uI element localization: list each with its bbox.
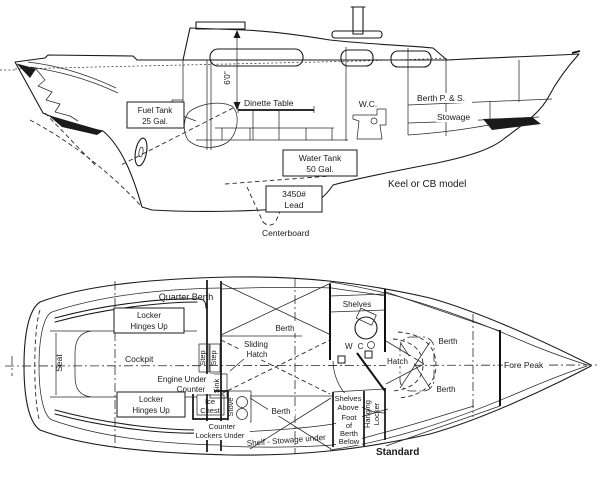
locker-aft-label2: Hinges Up (130, 322, 168, 331)
shelves-above-label: Shelves (335, 394, 362, 403)
quarter-berth-label: Quarter Berth (159, 292, 214, 302)
stove-label: Stove (226, 397, 235, 416)
hanging-locker-label: Hanging (363, 400, 372, 428)
shelf-stowage-label: Shelf - Stowage under (246, 433, 326, 448)
toilet-pump-profile (371, 118, 377, 124)
berth-ps-label: Berth P. & S. (417, 93, 465, 103)
shelves-above-label2: Above (337, 403, 358, 412)
counter-lockers-label2: Lockers Under (196, 431, 245, 440)
step-label-2: Step (209, 350, 218, 365)
dinette-table-label: Dinette Table (244, 98, 294, 108)
toilet-profile (353, 109, 386, 139)
step-label-1: Step (198, 350, 207, 365)
ice-chest-label2: Chest (200, 406, 221, 415)
fuel-tank-label: Fuel Tank (138, 106, 174, 115)
hanging-locker-top-line (333, 389, 385, 392)
stove-burner-bottom (237, 409, 248, 420)
sliding-hatch-label2: Hatch (247, 350, 268, 359)
cabin-window-fwd (391, 51, 431, 67)
foot-of-berth-label4: Below (339, 437, 360, 446)
cabin-window-aft (210, 49, 303, 66)
sliding-hatch-leader (230, 358, 245, 371)
berth-main-bottom-label: Berth (271, 407, 290, 416)
plan-view: Quarter Berth Locker Hinges Up Seat Cock… (5, 277, 598, 458)
wc-profile-label: W.C. (359, 99, 377, 109)
seat-label: Seat (54, 354, 64, 372)
locker-fwd-label: Locker (139, 395, 163, 404)
berth-main-top-label: Berth (275, 324, 294, 333)
stemhead-mark (572, 51, 580, 53)
cabin-trunk-outline (183, 28, 447, 60)
station-lines (115, 278, 473, 454)
fuel-tank-capacity: 25 Gal. (142, 117, 168, 126)
wc-door-leaf (357, 353, 385, 391)
stove-burner-top (237, 397, 248, 408)
counter-lockers-label: Counter (209, 422, 236, 431)
saloon-dashed-diagonals (221, 340, 330, 394)
hatch-label: Hatch (387, 357, 408, 366)
locker-fwd-label2: Hinges Up (132, 406, 170, 415)
locker-aft-label: Locker (137, 311, 161, 320)
dimension-arrow-up (234, 30, 241, 38)
water-tank-capacity: 50 Gal. (306, 164, 333, 174)
dinette-table-legs (238, 106, 314, 140)
propeller-hub (138, 147, 144, 158)
cockpit-label: Cockpit (125, 354, 154, 364)
sink-label: Sink (212, 378, 221, 393)
centerboard-label: Centerboard (262, 228, 310, 238)
boat-drawing-page: Fuel Tank 25 Gal. 6'0'' Dinette Table W.… (0, 0, 600, 500)
hanging-locker-label2: Locker (372, 402, 381, 425)
mast-stub (353, 7, 363, 34)
bow-waterline-shading (483, 117, 541, 130)
sliding-hatch-label: Sliding (244, 340, 268, 349)
keel-note-label: Keel or CB model (388, 179, 466, 190)
stowage-label: Stowage (437, 112, 470, 122)
profile-view: Fuel Tank 25 Gal. 6'0'' Dinette Table W.… (0, 7, 580, 238)
headroom-dimension: 6'0'' (223, 71, 232, 85)
sailboat-blueprint: Fuel Tank 25 Gal. 6'0'' Dinette Table W.… (0, 0, 600, 500)
berth-fwd-top-label: Berth (438, 337, 457, 346)
standard-model-label: Standard (376, 447, 419, 458)
door-post-fwd (365, 351, 372, 358)
door-post-aft (338, 356, 345, 363)
ice-chest-label: Ice (205, 397, 215, 406)
shelves-label: Shelves (343, 300, 371, 309)
ballast-material-label: Lead (285, 200, 304, 210)
propeller (133, 137, 149, 166)
ballast-weight-label: 3450# (282, 189, 306, 199)
water-tank-label: Water Tank (299, 153, 342, 163)
berth-fwd-bottom-label: Berth (436, 385, 455, 394)
wc-plan-label: W C (345, 342, 365, 351)
engine-under-label: Engine Under (158, 375, 207, 384)
fore-peak-label: Fore Peak (504, 360, 544, 370)
toilet-pump-plan (368, 342, 375, 349)
